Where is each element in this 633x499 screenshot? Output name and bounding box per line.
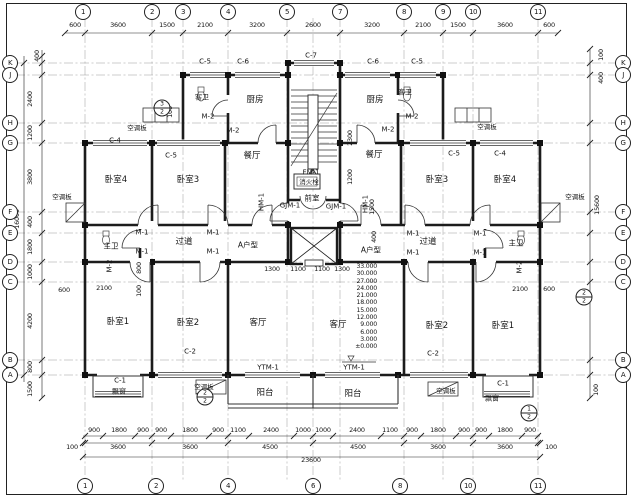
- floor-elevation-value: 9.000: [337, 321, 377, 328]
- dimension-label: 2100: [96, 285, 112, 292]
- dimension-label: 900: [524, 427, 536, 434]
- dimension-label: 1000: [315, 427, 331, 434]
- grid-bubble: 9: [435, 4, 451, 20]
- dimension-label: 900: [88, 427, 100, 434]
- grid-bubble: 11: [530, 478, 546, 494]
- room-label: 卧室2: [177, 319, 199, 328]
- grid-bubble: 8: [396, 4, 412, 20]
- grid-bubble: F: [615, 204, 631, 220]
- dimension-label: 3600: [430, 444, 446, 451]
- component-label: C-5: [165, 153, 177, 160]
- dimension-label: 2100: [197, 22, 213, 29]
- component-label: C-5: [199, 59, 211, 66]
- dimension-label: 2400: [263, 427, 279, 434]
- floorplan-linework: [0, 0, 633, 499]
- room-label: 空调板: [127, 125, 147, 132]
- component-label: GJM-1: [280, 203, 301, 210]
- grid-bubble: C: [2, 274, 18, 290]
- component-label: C-7: [305, 53, 317, 60]
- dimension-label: 2600: [305, 22, 321, 29]
- room-label: 阳台: [256, 389, 273, 398]
- grid-bubble: 7: [332, 4, 348, 20]
- room-label: 卧室1: [492, 322, 514, 331]
- room-label: 客卫: [195, 95, 209, 102]
- grid-bubble: 6: [305, 478, 321, 494]
- component-label: YTM-1: [343, 365, 365, 372]
- detail-callout: 22: [197, 389, 214, 406]
- room-label: 厨房: [246, 96, 263, 105]
- grid-bubble: 3: [175, 4, 191, 20]
- room-label: 过道: [175, 238, 192, 247]
- dimension-label: 800: [27, 361, 34, 373]
- room-label: 前室: [305, 194, 320, 202]
- dimension-label: 1500: [369, 199, 376, 215]
- dimension-label: 3600: [497, 444, 513, 451]
- component-label: GJM-1: [326, 204, 347, 211]
- dimension-label: 1000: [27, 264, 34, 280]
- dimension-label: 3600: [110, 22, 126, 29]
- room-label: 卧室4: [105, 176, 127, 185]
- room-label: A户型: [238, 241, 258, 249]
- floor-elevation-value: ±0.000: [337, 343, 377, 350]
- dimension-label: 3600: [110, 444, 126, 451]
- dimension-label: 1200: [27, 125, 34, 141]
- room-label: 空调板: [477, 124, 497, 131]
- room-label: 厨房: [366, 96, 383, 105]
- component-label: M-2: [517, 260, 524, 273]
- floor-elevation-value: 18.000: [337, 299, 377, 306]
- component-label: M-2: [107, 259, 114, 272]
- component-label: C-5: [411, 59, 423, 66]
- component-label: C-6: [237, 59, 249, 66]
- dimension-label: 23600: [301, 457, 321, 464]
- dimension-label: 100: [136, 285, 143, 297]
- grid-bubble: J: [2, 67, 18, 83]
- dimension-label: 1800: [111, 427, 127, 434]
- grid-bubble: J: [615, 67, 631, 83]
- detail-callout: 32: [154, 100, 171, 117]
- dimension-label: 1500: [159, 22, 175, 29]
- grid-bubble: 2: [144, 4, 160, 20]
- dimension-label: 600: [69, 22, 81, 29]
- dimension-label: 1800: [430, 427, 446, 434]
- dimension-label: 600: [543, 286, 555, 293]
- grid-bubble: 10: [465, 4, 481, 20]
- dimension-label: 900: [406, 427, 418, 434]
- component-label: M-1: [206, 230, 219, 237]
- room-label: 飘窗: [112, 389, 126, 396]
- grid-bubble: A: [2, 367, 18, 383]
- grid-bubble: 1: [75, 4, 91, 20]
- balcony: [228, 375, 398, 408]
- component-label: M-1: [406, 250, 419, 257]
- grid-bubble: 8: [392, 478, 408, 494]
- dimension-label: 1000: [295, 427, 311, 434]
- room-label: 餐厅: [365, 151, 382, 160]
- dimension-label: 400: [598, 72, 605, 84]
- component-label: M-2: [201, 114, 214, 121]
- dimension-label: 900: [137, 427, 149, 434]
- dimension-label: 100: [598, 49, 605, 61]
- component-label: M-1: [135, 230, 148, 237]
- room-label: 卧室3: [426, 176, 448, 185]
- dimension-label: 1500: [27, 381, 34, 397]
- floor-elevation-value: 24.000: [337, 285, 377, 292]
- component-label: C-2: [427, 351, 439, 358]
- component-label: YTM-1: [257, 365, 279, 372]
- grid-bubble: C: [615, 274, 631, 290]
- floor-elevation-value: 12.000: [337, 314, 377, 321]
- dimension-label: 3200: [364, 22, 380, 29]
- dimension-label: 3800: [27, 169, 34, 185]
- component-label: C-5: [448, 151, 460, 158]
- grid-bubble: D: [2, 254, 18, 270]
- room-label: 客卫: [398, 90, 412, 97]
- component-label: C-2: [184, 349, 196, 356]
- dimension-label: 1800: [497, 427, 513, 434]
- dimension-label: 1200: [347, 169, 354, 185]
- room-label: 主卫: [509, 239, 524, 247]
- floor-elevation-value: 3.000: [337, 336, 377, 343]
- dimension-label: 15600: [594, 195, 601, 215]
- dimension-label: 400: [371, 231, 378, 243]
- dimension-label: 3600: [497, 22, 513, 29]
- component-label: M-1: [473, 231, 486, 238]
- dimension-label: 1300: [264, 266, 280, 273]
- room-label: 过道: [419, 238, 436, 247]
- floor-elevation-value: 30.000: [337, 270, 377, 277]
- grid-bubble: B: [615, 352, 631, 368]
- dimension-label: 4500: [262, 444, 278, 451]
- dimension-label: 100: [545, 444, 557, 451]
- elevator: [291, 228, 337, 267]
- dimension-label: 100: [593, 384, 600, 396]
- room-label: 飘窗: [485, 396, 499, 403]
- component-label: HM-1: [259, 193, 266, 211]
- floor-elevation-value: 15.000: [337, 307, 377, 314]
- component-label: M-1: [206, 249, 219, 256]
- component-label: M-1: [406, 231, 419, 238]
- component-label: C-1: [497, 381, 509, 388]
- level-symbol: [342, 356, 376, 362]
- grid-bubble: 4: [220, 4, 236, 20]
- grid-bubble: 11: [530, 4, 546, 20]
- grid-bubble: 1: [77, 478, 93, 494]
- grid-bubble: D: [615, 254, 631, 270]
- dimension-label: 4200: [27, 313, 34, 329]
- dimension-label: 3600: [182, 444, 198, 451]
- grid-bubble: E: [615, 225, 631, 241]
- dimension-label: 400: [34, 50, 41, 62]
- detail-callout: 22: [576, 289, 593, 306]
- dimension-label: 2300: [347, 130, 354, 146]
- room-label: 主卫: [104, 242, 119, 250]
- component-label: M-1: [135, 249, 148, 256]
- dimension-label: 1100: [314, 266, 330, 273]
- grid-bubble: B: [2, 352, 18, 368]
- dimension-label: 100: [66, 444, 78, 451]
- grid-bubble: 2: [148, 478, 164, 494]
- floor-elevation-value: 6.000: [337, 329, 377, 336]
- room-label: 餐厅: [243, 152, 260, 161]
- grid-bubble: 10: [460, 478, 476, 494]
- floor-elevation-list: 33.00030.00027.00024.00021.00018.00015.0…: [337, 263, 377, 351]
- dimension-label: 900: [458, 427, 470, 434]
- room-label: 卧室3: [177, 176, 199, 185]
- component-label: C-4: [109, 138, 121, 145]
- dimension-label: 1800: [182, 427, 198, 434]
- dimension-label: 2100: [415, 22, 431, 29]
- dimension-label: 1100: [290, 266, 306, 273]
- grid-bubble: H: [2, 115, 18, 131]
- dimension-label: 600: [543, 22, 555, 29]
- room-label: A户型: [361, 246, 381, 254]
- grid-bubble: A: [615, 367, 631, 383]
- component-label: M-2: [405, 114, 418, 121]
- component-label: FM-1: [302, 170, 319, 177]
- dimension-label: 800: [136, 262, 143, 274]
- grid-bubble: F: [2, 204, 18, 220]
- component-label: M-2: [381, 127, 394, 134]
- grid-bubble: H: [615, 115, 631, 131]
- room-label: 卧室1: [107, 318, 129, 327]
- detail-callout: 12: [521, 405, 538, 422]
- component-label: C-4: [494, 151, 506, 158]
- room-label: 卧室4: [494, 176, 516, 185]
- dimension-label: 900: [155, 427, 167, 434]
- room-label: 空调板: [52, 194, 72, 201]
- dimension-label: 1100: [230, 427, 246, 434]
- dimension-label: 4500: [350, 444, 366, 451]
- grid-bubble: 4: [220, 478, 236, 494]
- grid-bubble: G: [615, 135, 631, 151]
- room-label: 空调板: [436, 388, 456, 395]
- grid-bubble: E: [2, 225, 18, 241]
- component-label: M-2: [226, 128, 239, 135]
- grid-bubble: G: [2, 135, 18, 151]
- room-label: 客厅: [249, 319, 266, 328]
- component-label: C-6: [367, 59, 379, 66]
- dimension-label: 400: [27, 216, 34, 228]
- dimension-label: 2100: [512, 286, 528, 293]
- room-label: 空调板: [565, 194, 585, 201]
- dimension-label: 600: [58, 287, 70, 294]
- floor-elevation-value: 21.000: [337, 292, 377, 299]
- room-label: 消火栓: [299, 179, 319, 186]
- floor-elevation-value: 27.000: [337, 278, 377, 285]
- dimension-label: 2400: [349, 427, 365, 434]
- dimension-label: 900: [212, 427, 224, 434]
- dimension-label: 1100: [382, 427, 398, 434]
- room-label: 卧室2: [426, 322, 448, 331]
- floor-elevation-value: 33.000: [337, 263, 377, 270]
- dimension-label: 1500: [450, 22, 466, 29]
- component-label: C-1: [114, 378, 126, 385]
- floor-plan-canvas: 6003600150021003200260032002100150036006…: [0, 0, 633, 499]
- dimension-label: 900: [475, 427, 487, 434]
- grid-bubble: 5: [279, 4, 295, 20]
- dimension-label: 1800: [27, 239, 34, 255]
- component-label: M-1: [473, 250, 486, 257]
- component-label: HM-1: [363, 195, 370, 213]
- dimension-label: 3200: [249, 22, 265, 29]
- room-label: 阳台: [344, 390, 361, 399]
- dimension-label: 2400: [27, 91, 34, 107]
